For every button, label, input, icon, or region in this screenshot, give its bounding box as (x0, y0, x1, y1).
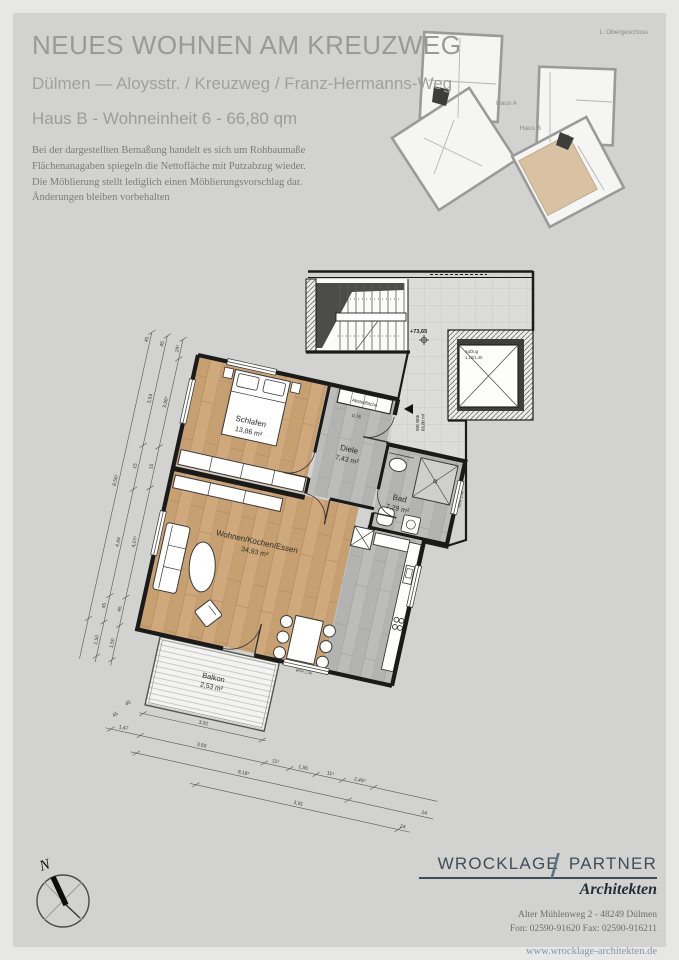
dim: 24 (399, 823, 406, 830)
logo-names: WROCKLAGE / PARTNER (419, 854, 657, 879)
drawing-sheet: 1. Obergeschoss Haus A Haus B (0, 0, 679, 960)
dim: 3,54 (146, 393, 154, 404)
stair-handrail (336, 313, 406, 321)
disclaimer-line: Die Möblierung stellt lediglich einen Mö… (32, 175, 432, 191)
elevator-label-1: Aufzug (465, 349, 479, 354)
haus-b-label: Haus B (520, 125, 541, 132)
title-block: NEUES WOHNEN AM KREUZWEG Dülmen — Aloyss… (32, 30, 432, 206)
logo-name1: WROCKLAGE (438, 854, 559, 874)
dim: 45 (117, 606, 124, 613)
dim: 15 (132, 463, 139, 470)
address-line: Alter Mühlenweg 2 - 48249 Dülmen (419, 908, 657, 922)
nightstand (223, 367, 234, 379)
dim: 11⁵ (326, 770, 334, 777)
dim-lines-bottom (97, 703, 443, 839)
dim: 45 (111, 711, 119, 719)
dim: 11⁵ (272, 758, 280, 765)
sheet-title: NEUES WOHNEN AM KREUZWEG (32, 30, 432, 61)
disclaimer: Bei der dargestellten Bemaßung handelt e… (32, 143, 432, 206)
logo-slash-icon: / (550, 850, 561, 884)
logo-name2: PARTNER (569, 854, 657, 874)
dim: 45 (124, 699, 132, 707)
dim: 1,50 (109, 638, 117, 649)
dim: 4,44 (115, 537, 123, 548)
unit-tag-line1: WE B06 (415, 414, 420, 431)
washing-machine (401, 514, 421, 534)
elevator-label-2: 1,10/1,40 (465, 355, 483, 360)
logo-address: Alter Mühlenweg 2 - 48249 Dülmen Fon: 02… (419, 908, 657, 937)
dim: 1,50 (93, 634, 101, 645)
disclaimer-line: Flächenanagaben spiegeln die Nettofläche… (32, 159, 432, 175)
dim: 3,96⁵ (162, 396, 170, 409)
svg-text:+73,65: +73,65 (410, 329, 427, 335)
north-label: N (37, 856, 53, 875)
logo-website[interactable]: www.wrocklage-architekten.de (419, 946, 657, 957)
dim: 8,18⁵ (237, 769, 250, 777)
dim: 4,07⁵ (131, 535, 139, 548)
unit-tag-line2: 66,80 m² (421, 413, 426, 431)
sheet-subtitle: Dülmen — Aloysstr. / Kreuzweg / Franz-He… (32, 74, 432, 94)
floor-label: 1. Obergeschoss (599, 29, 649, 36)
stair-west-wall (306, 279, 316, 352)
dim: 24 (421, 810, 428, 817)
architect-logo-block: WROCKLAGE / PARTNER Architekten Alter Mü… (419, 854, 657, 957)
dim: 2,49⁵ (353, 776, 366, 784)
haus-a-label: Haus A (496, 100, 518, 107)
phone-line: Fon: 02590-91620 Fax: 02590-916211 (419, 922, 657, 936)
dim: 45 (159, 340, 166, 347)
dim: 8,56⁵ (112, 474, 120, 487)
compass-needle-icon (53, 877, 66, 905)
unit-line: Haus B - Wohneinheit 6 - 66,80 qm (32, 109, 432, 129)
nightstand (290, 382, 301, 394)
elevator-shaft: Aufzug 1,10/1,40 (448, 330, 533, 420)
compass: N (37, 856, 89, 927)
dim-labels-bottom: 3,91 45 45 1,47 3,50 11⁵ 1,55 11⁵ 2,49⁵ … (101, 696, 438, 834)
dim: 15 (148, 463, 155, 470)
logo-subtitle: Architekten (419, 881, 657, 899)
dim: 45 (144, 336, 151, 343)
disclaimer-line: Änderungen bleiben vorbehalten (32, 190, 432, 206)
dim: 45 (101, 602, 108, 609)
disclaimer-line: Bei der dargestellten Bemaßung handelt e… (32, 143, 432, 159)
